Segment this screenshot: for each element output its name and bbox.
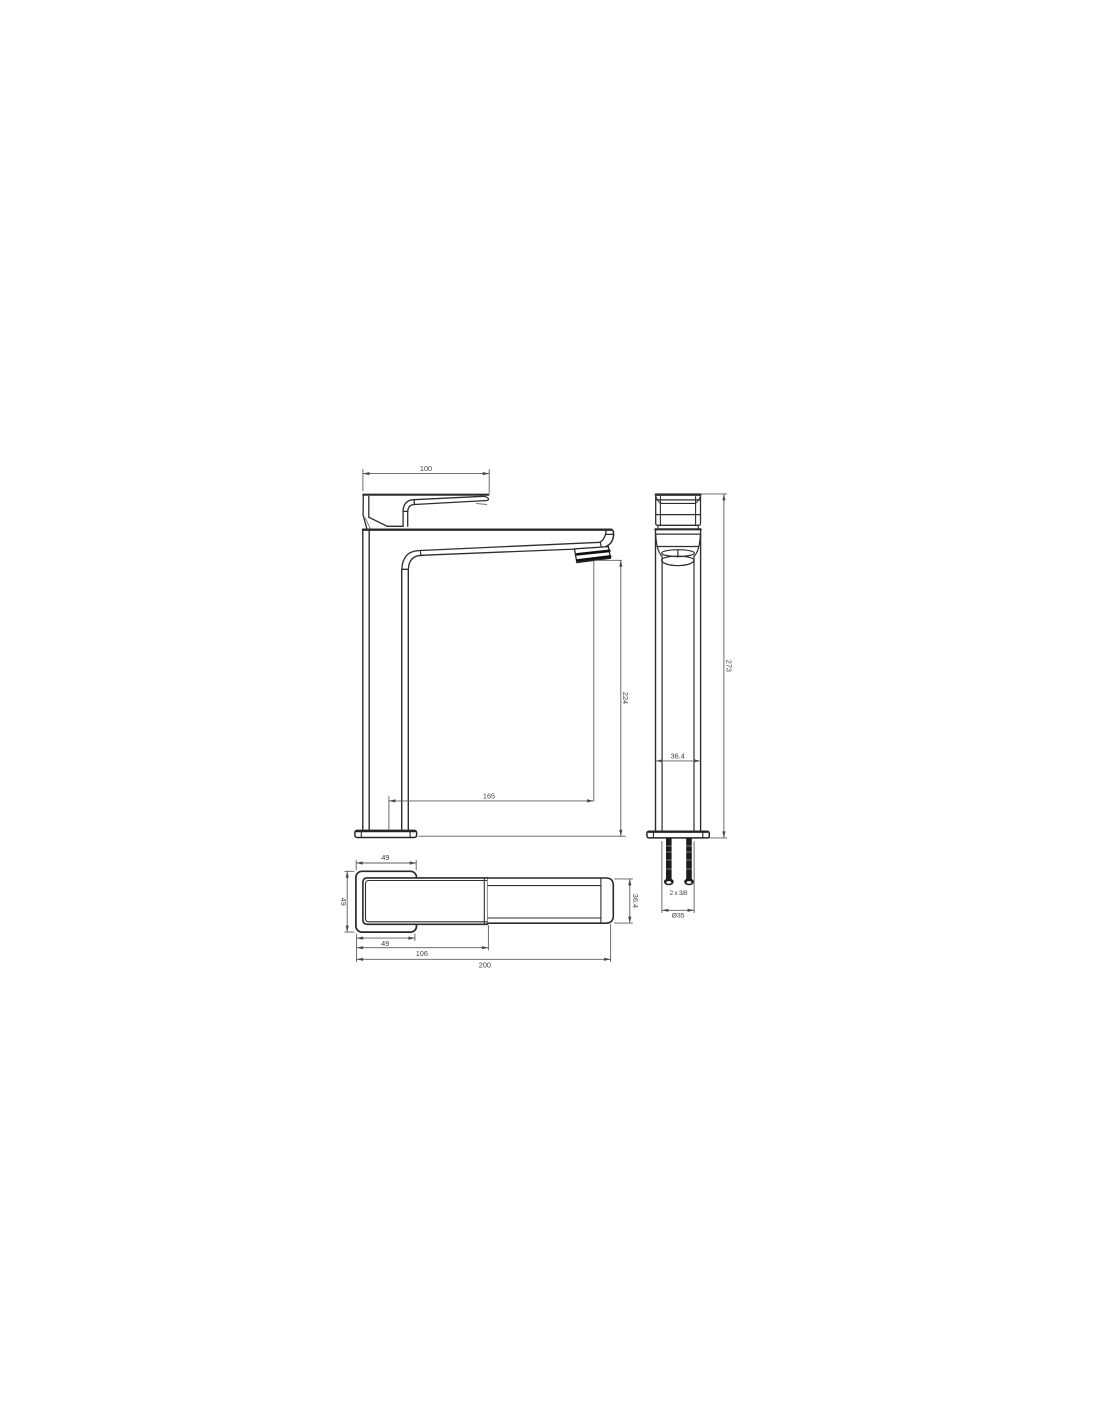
svg-text:Ø35: Ø35 (672, 913, 685, 920)
svg-text:49: 49 (381, 939, 389, 948)
svg-text:200: 200 (479, 960, 491, 969)
svg-text:273: 273 (725, 660, 734, 672)
svg-text:36.4: 36.4 (631, 894, 640, 908)
svg-text:49: 49 (381, 853, 389, 862)
svg-text:36.4: 36.4 (671, 752, 685, 761)
svg-text:165: 165 (483, 791, 495, 800)
svg-text:100: 100 (420, 464, 432, 473)
svg-text:49: 49 (339, 898, 348, 906)
svg-text:224: 224 (621, 692, 630, 704)
svg-text:2 x 3/8: 2 x 3/8 (670, 890, 688, 897)
svg-text:106: 106 (416, 949, 428, 958)
